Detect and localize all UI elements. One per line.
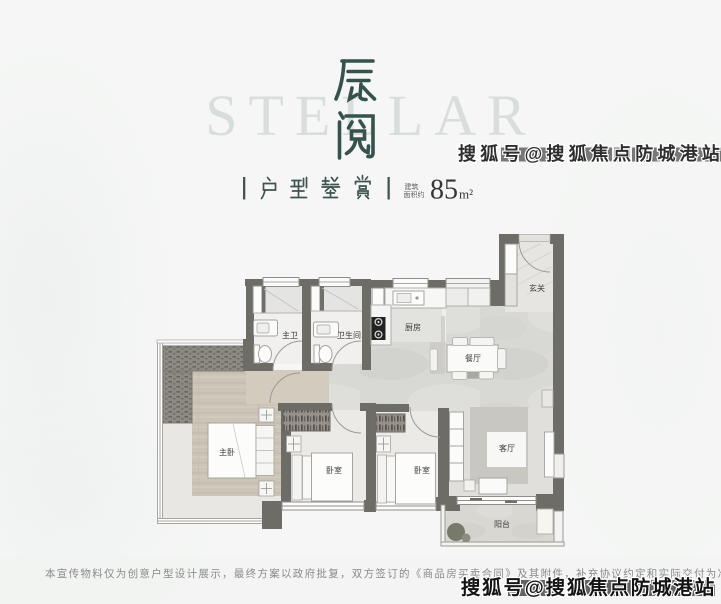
svg-text:卧室: 卧室	[326, 465, 342, 475]
svg-text:85: 85	[430, 175, 458, 206]
svg-text:m²: m²	[459, 187, 473, 202]
svg-text:卧室: 卧室	[414, 465, 430, 475]
svg-text:客厅: 客厅	[499, 443, 515, 453]
svg-text:餐厅: 餐厅	[465, 354, 481, 363]
svg-text:搜狐号@搜狐焦点防城港站: 搜狐号@搜狐焦点防城港站	[458, 143, 721, 164]
svg-text:厨房: 厨房	[405, 322, 421, 332]
svg-text:建筑: 建筑	[405, 182, 419, 191]
svg-text:卫生间: 卫生间	[337, 330, 361, 340]
svg-text:主卧: 主卧	[219, 447, 235, 457]
svg-text:面积约: 面积约	[404, 190, 425, 199]
svg-text:玄关: 玄关	[529, 283, 545, 293]
svg-text:搜狐号@搜狐焦点防城港站: 搜狐号@搜狐焦点防城港站	[461, 576, 716, 599]
svg-text:阳台: 阳台	[494, 519, 510, 529]
svg-text:主卫: 主卫	[282, 330, 298, 340]
